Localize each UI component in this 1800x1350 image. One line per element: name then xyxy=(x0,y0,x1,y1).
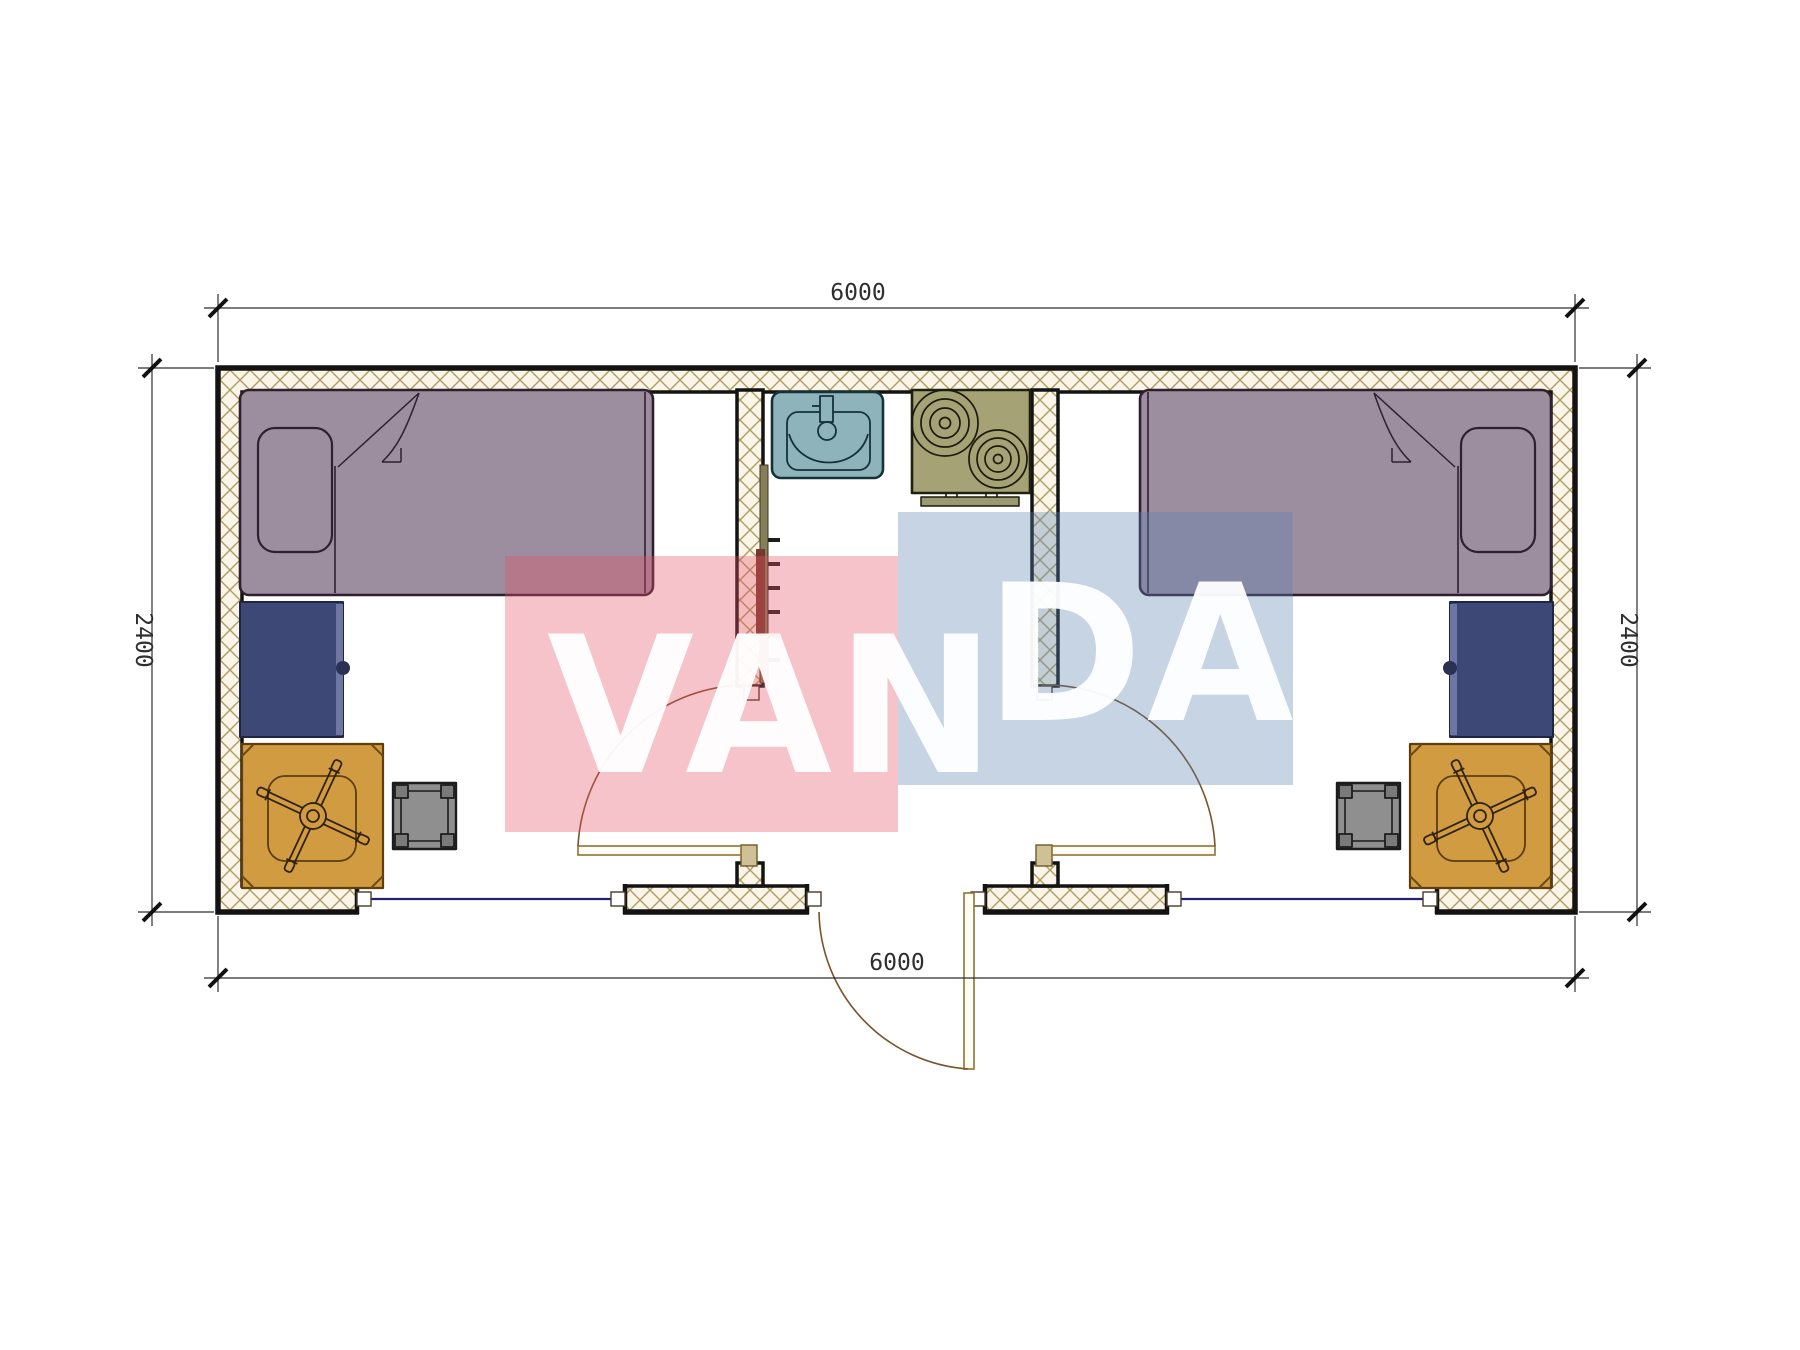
stove xyxy=(912,390,1030,506)
cabinet-right-knob xyxy=(1443,661,1457,675)
desk-right xyxy=(1410,744,1551,888)
dimension-bottom-label: 6000 xyxy=(869,950,924,976)
dimension-left-label: 2400 xyxy=(130,612,156,667)
dimension-top: 6000 xyxy=(204,280,1589,362)
dimension-top-label: 6000 xyxy=(830,280,885,306)
door-leaf-entrance xyxy=(964,893,974,1069)
stool-left xyxy=(393,783,456,849)
stove-handle xyxy=(921,497,1019,506)
hinge-left-door xyxy=(741,845,757,866)
desk-left xyxy=(242,744,383,888)
watermark-text-da: DA xyxy=(985,544,1298,765)
door-leaf-left-room xyxy=(578,846,741,855)
opening-entrance xyxy=(809,878,983,918)
dimension-left: 2400 xyxy=(130,354,214,926)
floor-plan-canvas: VAN DA 6000 6000 2400 2400 xyxy=(0,0,1800,1350)
watermark-text-van: VAN xyxy=(547,596,999,817)
cabinet-left-knob xyxy=(336,661,350,675)
door-leaf-right-room xyxy=(1052,846,1215,855)
dimension-right: 2400 xyxy=(1579,354,1651,926)
watermark: VAN DA xyxy=(505,512,1298,832)
dimension-right-label: 2400 xyxy=(1615,612,1641,667)
sink xyxy=(772,392,883,478)
sink-faucet xyxy=(820,396,833,422)
dimension-bottom: 6000 xyxy=(204,916,1589,992)
door-swing-entrance xyxy=(819,912,968,1069)
cabinet-right xyxy=(1450,602,1553,737)
floor-plan-page: VAN DA 6000 6000 2400 2400 xyxy=(0,0,1800,1350)
hinge-right-door xyxy=(1036,845,1052,866)
cabinet-left xyxy=(240,602,343,737)
stool-right xyxy=(1337,783,1400,849)
